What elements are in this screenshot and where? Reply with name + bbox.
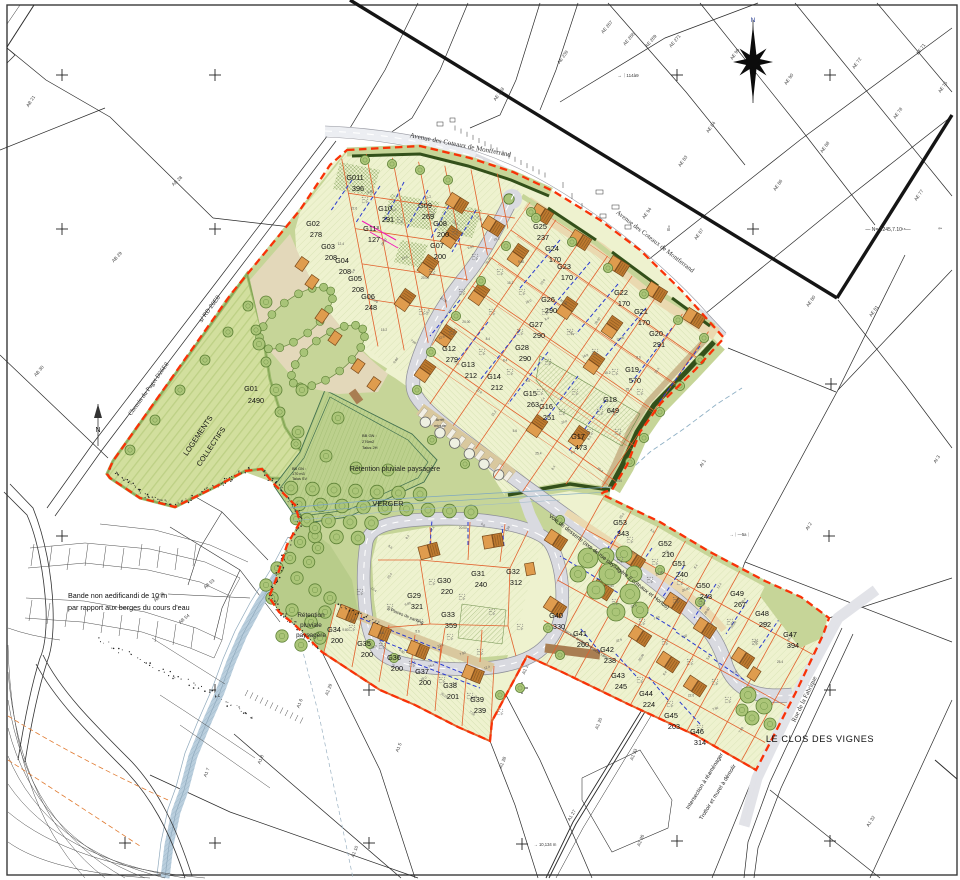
svg-text:G45: G45 [664,711,678,720]
svg-text:570: 570 [629,376,641,385]
svg-text:G18: G18 [603,395,617,404]
svg-text:15.2: 15.2 [604,371,610,375]
svg-text:minute: minute [434,423,447,428]
svg-text:G22: G22 [614,288,628,297]
svg-text:G01: G01 [244,384,258,393]
svg-text:G06: G06 [361,292,375,301]
svg-text:9.80: 9.80 [518,260,524,264]
svg-text:20.00: 20.00 [614,479,622,483]
svg-text:G47: G47 [783,630,797,639]
svg-text:212: 212 [491,383,503,392]
svg-text:200: 200 [437,230,449,239]
svg-text:G23: G23 [557,262,571,271]
svg-text:G31: G31 [471,569,485,578]
svg-text:N: N [751,17,756,24]
svg-text:343: 343 [617,529,629,538]
svg-text:278: 278 [310,230,322,239]
svg-text:Bande non aedificandi de 10 m: Bande non aedificandi de 10 m [68,591,167,600]
svg-text:5.6: 5.6 [526,379,531,383]
svg-text:G29: G29 [407,591,421,600]
svg-text:200: 200 [391,664,403,673]
svg-text:BB GN :: BB GN : [362,433,377,438]
svg-text:G36: G36 [387,653,401,662]
svg-text:VERGER: VERGER [372,499,403,508]
svg-text:170: 170 [638,318,650,327]
svg-text:G49: G49 [730,589,744,598]
svg-text:5.6: 5.6 [636,355,641,359]
svg-text:G13: G13 [461,360,475,369]
svg-text:G07: G07 [430,241,444,250]
svg-text:par rapport aux berges du cour: par rapport aux berges du cours d'eau [68,603,190,612]
svg-text:G52: G52 [658,539,672,548]
svg-text:200: 200 [331,636,343,645]
svg-text:201: 201 [447,692,459,701]
svg-text:E=: E= [666,225,671,231]
svg-text:473: 473 [575,443,587,452]
svg-text:G25: G25 [533,222,547,231]
svg-text:G14: G14 [487,372,501,381]
svg-text:394: 394 [787,641,799,650]
svg-text:2490: 2490 [248,396,264,405]
svg-text:248: 248 [365,303,377,312]
svg-text:⇦: ⇦ [938,226,942,232]
svg-text:279: 279 [446,355,458,364]
svg-text:G10: G10 [378,204,392,213]
svg-text:170 m3: 170 m3 [292,472,305,476]
svg-text:G27: G27 [529,320,543,329]
svg-text:G44: G44 [639,689,653,698]
svg-text:359: 359 [445,621,457,630]
svg-text:22.6: 22.6 [351,207,357,211]
svg-text:12.4: 12.4 [338,242,344,246]
svg-text:5.6: 5.6 [415,630,420,634]
svg-text:9.80: 9.80 [342,628,348,632]
svg-text:170: 170 [618,299,630,308]
svg-text:292: 292 [759,620,771,629]
svg-text:G011: G011 [346,173,363,182]
svg-text:G34: G34 [327,625,341,634]
svg-text:290: 290 [533,331,545,340]
svg-text:314: 314 [694,738,706,747]
svg-text:290: 290 [545,306,557,315]
svg-text:220: 220 [441,587,453,596]
svg-text:G26: G26 [541,295,555,304]
svg-text:25.4: 25.4 [777,660,783,664]
svg-text:G40: G40 [549,611,563,620]
svg-text:20.00: 20.00 [459,526,467,530]
svg-text:15.2: 15.2 [507,281,513,285]
svg-text:245: 245 [615,682,627,691]
svg-text:BB GN :: BB GN : [292,467,306,471]
svg-text:8.4: 8.4 [486,337,491,341]
svg-text:15.2: 15.2 [381,328,387,332]
svg-text:G02: G02 [306,219,320,228]
svg-text:G37: G37 [415,667,429,676]
svg-text:25.4: 25.4 [535,452,541,456]
svg-text:— N= 2245,7.10¹⁶—: — N= 2245,7.10¹⁶— [865,227,910,233]
svg-text:G16: G16 [539,402,553,411]
svg-text:212: 212 [465,371,477,380]
svg-text:22.6: 22.6 [688,693,694,697]
svg-text:pluviale: pluviale [300,622,322,629]
svg-text:291: 291 [382,215,394,224]
svg-text:G39: G39 [470,695,484,704]
svg-text:G33: G33 [441,610,455,619]
svg-text:240: 240 [475,580,487,589]
svg-text:G17: G17 [571,432,585,441]
svg-text:170: 170 [561,273,573,282]
svg-text:Rétention: Rétention [297,612,325,619]
svg-text:8.4: 8.4 [503,358,508,362]
svg-text:G09: G09 [418,201,432,210]
svg-text:237: 237 [537,233,549,242]
svg-text:G43: G43 [611,671,625,680]
svg-text:→ 10,134 m: → 10,134 m [534,842,557,847]
svg-text:G35: G35 [357,639,371,648]
svg-text:290: 290 [519,354,531,363]
svg-text:G12: G12 [442,344,456,353]
svg-text:127: 127 [368,235,380,244]
svg-text:LE CLOS DES VIGNES: LE CLOS DES VIGNES [766,734,874,744]
svg-text:G51: G51 [672,559,686,568]
svg-text:200: 200 [361,650,373,659]
svg-text:396: 396 [352,184,364,193]
svg-text:203: 203 [668,722,680,731]
svg-text:200: 200 [419,678,431,687]
svg-text:G21: G21 [634,307,648,316]
svg-text:312: 312 [510,578,522,587]
svg-text:5.6: 5.6 [513,429,518,433]
svg-text:5.6: 5.6 [380,631,385,635]
svg-text:G05: G05 [348,274,362,283]
svg-text:G48: G48 [755,609,769,618]
svg-text:→｜114à9: →｜114à9 [617,73,639,78]
svg-text:G24: G24 [545,244,559,253]
svg-text:G28: G28 [515,343,529,352]
svg-text:paysagère: paysagère [296,632,326,639]
svg-text:G11³: G11³ [363,224,379,233]
svg-text:G15: G15 [523,389,537,398]
svg-text:Talus SV: Talus SV [292,477,307,481]
svg-text:649: 649 [607,406,619,415]
svg-text:G19: G19 [625,365,639,374]
svg-text:Rétention pluviale paysagère: Rétention pluviale paysagère [350,466,440,473]
svg-text:G53: G53 [613,518,627,527]
svg-text:G04: G04 [335,256,349,265]
svg-text:7.50: 7.50 [608,584,614,588]
svg-text:267: 267 [734,600,746,609]
svg-text:G30: G30 [437,576,451,585]
svg-text:243: 243 [700,592,712,601]
svg-text:→｜—5a｜: →｜—5a｜ [729,532,750,537]
svg-text:251: 251 [543,413,555,422]
svg-text:240: 240 [676,570,688,579]
svg-text:20.00: 20.00 [421,276,429,280]
svg-text:G08: G08 [433,219,447,228]
svg-text:321: 321 [411,602,423,611]
svg-text:Talus 2H: Talus 2H [362,445,378,450]
svg-text:N: N [95,427,100,434]
svg-text:200: 200 [434,252,446,261]
svg-text:291: 291 [653,340,665,349]
svg-text:25.4: 25.4 [626,388,632,392]
svg-text:239: 239 [474,706,486,715]
svg-text:G46: G46 [690,727,704,736]
svg-text:G20: G20 [649,329,663,338]
svg-text:Arrêt: Arrêt [436,417,446,422]
svg-text:276m2: 276m2 [362,439,375,444]
svg-text:G38: G38 [443,681,457,690]
svg-text:263: 263 [527,400,539,409]
svg-text:20.00: 20.00 [462,320,470,324]
svg-text:G32: G32 [506,567,520,576]
svg-text:224: 224 [643,700,655,709]
svg-text:G03: G03 [321,242,335,251]
svg-text:210: 210 [662,550,674,559]
svg-text:G50: G50 [696,581,710,590]
